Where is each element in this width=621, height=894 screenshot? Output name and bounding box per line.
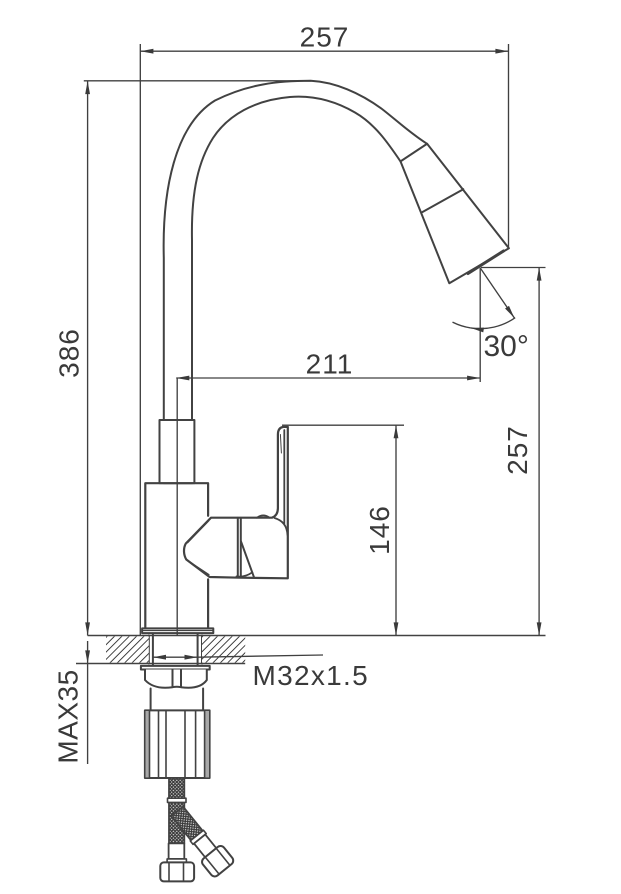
svg-text:386: 386 bbox=[54, 328, 85, 378]
svg-text:146: 146 bbox=[364, 505, 395, 555]
svg-text:257: 257 bbox=[300, 22, 350, 53]
svg-text:211: 211 bbox=[306, 349, 354, 380]
svg-text:M32x1.5: M32x1.5 bbox=[253, 660, 370, 691]
svg-text:MAX35: MAX35 bbox=[53, 669, 84, 763]
svg-text:257: 257 bbox=[502, 425, 533, 475]
svg-text:30°: 30° bbox=[484, 330, 529, 363]
